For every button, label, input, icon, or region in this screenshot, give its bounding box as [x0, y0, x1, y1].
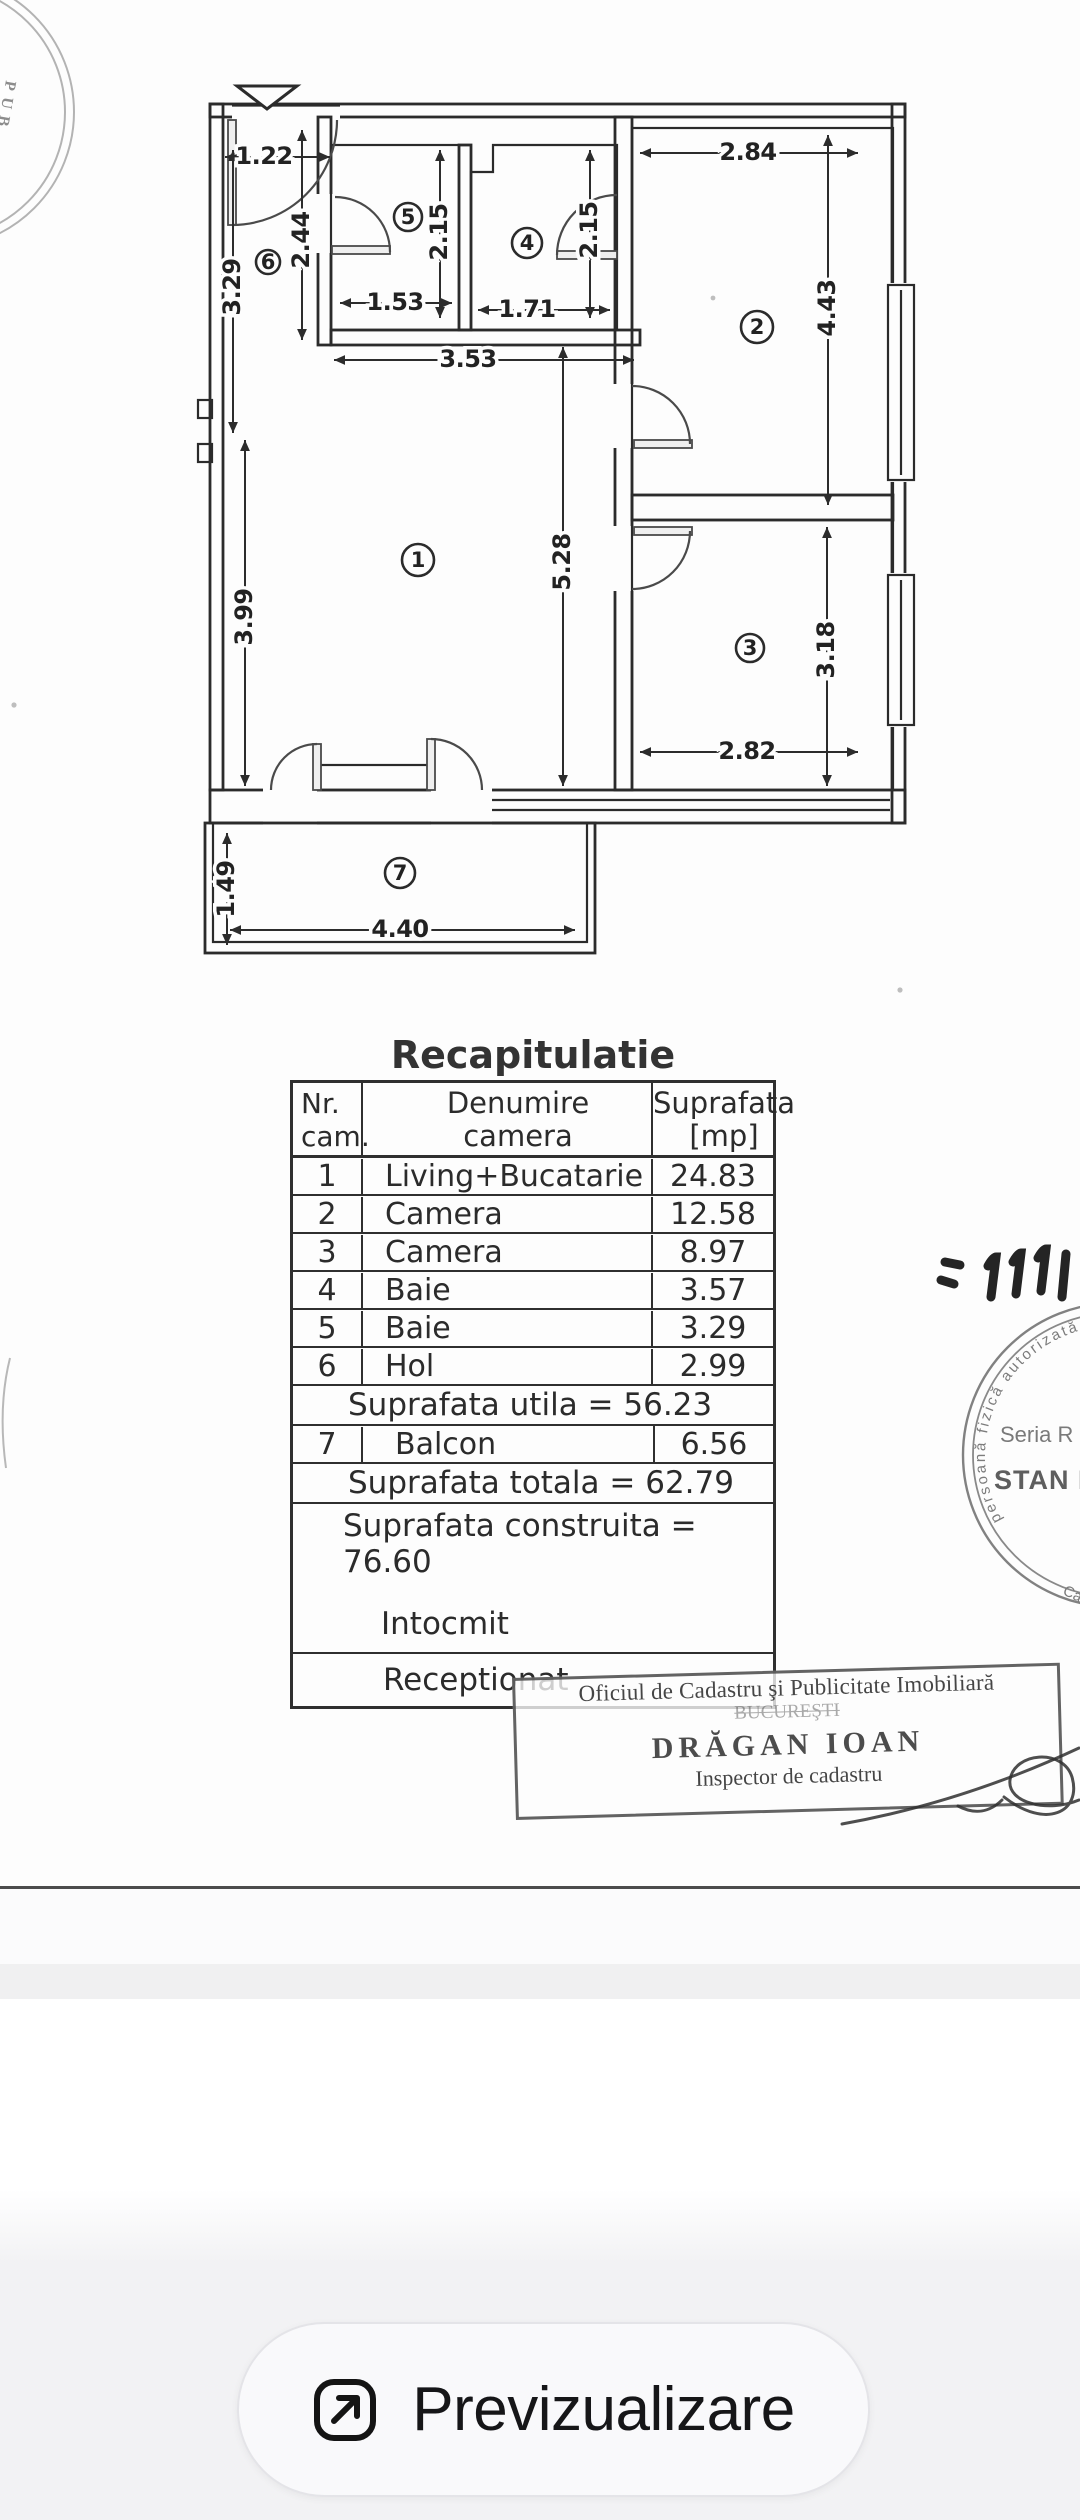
header-nr-line2: cam. [301, 1120, 361, 1153]
dim-label: 3.29 [218, 258, 246, 315]
gray-band [0, 1964, 1080, 1999]
margin-stamp-fragment: PUB [0, 0, 74, 248]
table-header-row: Nr. cam. Denumire camera Suprafata [mp] [293, 1083, 773, 1158]
document-preview-screen: PUB [0, 0, 1080, 2520]
header-name-line1: Denumire [447, 1087, 589, 1120]
light-band [0, 1889, 1080, 1964]
dim-label: 3.18 [812, 621, 840, 678]
cell-name: Camera [363, 1197, 653, 1232]
header-area-line1: Suprafata [653, 1087, 795, 1120]
dim-label: 1.71 [498, 295, 555, 323]
dim-label: 2.84 [719, 138, 776, 166]
round-stamp-seria: Seria R [1000, 1422, 1073, 1447]
cell-nr: 1 [293, 1159, 363, 1194]
dim-label: 1.22 [235, 142, 292, 170]
round-stamp-bottom-text: Ca [1060, 1582, 1080, 1606]
header-nr-line1: Nr. [301, 1087, 361, 1120]
dim-label: 1.53 [366, 288, 423, 316]
cell-name: Living+Bucatarie [363, 1159, 653, 1194]
room-number: 1 [411, 548, 426, 572]
margin-stamp-text: PUB [0, 79, 19, 134]
table-row: 2 Camera 12.58 [293, 1196, 773, 1234]
fade-area [0, 2189, 1080, 2264]
room-number: 6 [261, 250, 276, 274]
dim-label: 3.99 [230, 588, 258, 645]
header-area-line2: [mp] [689, 1120, 758, 1153]
recap-title: Recapitulatie [290, 1033, 776, 1080]
scan-specks [11, 296, 902, 993]
stamps-and-signature: persoană fizică autorizată de ANCPI Seri… [0, 1240, 1080, 1886]
round-stamp-name: STAN L [994, 1465, 1080, 1495]
dim-label: 4.40 [371, 915, 428, 943]
dim-label: 2.82 [718, 737, 775, 765]
signature [842, 1748, 1079, 1824]
dim-label: 2.15 [575, 201, 603, 258]
preview-button-label: Previzualizare [412, 2374, 794, 2445]
dim-label: 2.15 [425, 203, 453, 260]
cell-area: 24.83 [653, 1159, 773, 1194]
room-number: 2 [750, 315, 765, 339]
room-number: 7 [393, 861, 408, 885]
dim-label: 1.49 [212, 860, 240, 917]
blank-area [0, 1999, 1080, 2189]
dim-label: 4.43 [813, 279, 841, 336]
preview-button[interactable]: Previzualizare [237, 2322, 870, 2497]
floor-plan-drawing: PUB [0, 0, 1080, 1010]
scanned-floorplan-document: PUB [0, 0, 1080, 1886]
header-name-line2: camera [463, 1120, 573, 1153]
dim-label: 5.28 [548, 533, 576, 590]
room-number: 4 [520, 231, 535, 255]
round-stamp: persoană fizică autorizată de ANCPI Seri… [963, 1303, 1080, 1607]
margin-arc-fragment [3, 1358, 10, 1468]
handwritten-marks [941, 1249, 1066, 1297]
room-number: 3 [743, 636, 758, 660]
table-row: 1 Living+Bucatarie 24.83 [293, 1158, 773, 1196]
cell-nr: 2 [293, 1197, 363, 1232]
dim-label: 3.53 [439, 345, 496, 373]
dim-label: 2.44 [287, 211, 315, 268]
open-in-new-icon [312, 2377, 378, 2443]
room-number: 5 [401, 205, 416, 229]
cell-area: 12.58 [653, 1197, 773, 1232]
